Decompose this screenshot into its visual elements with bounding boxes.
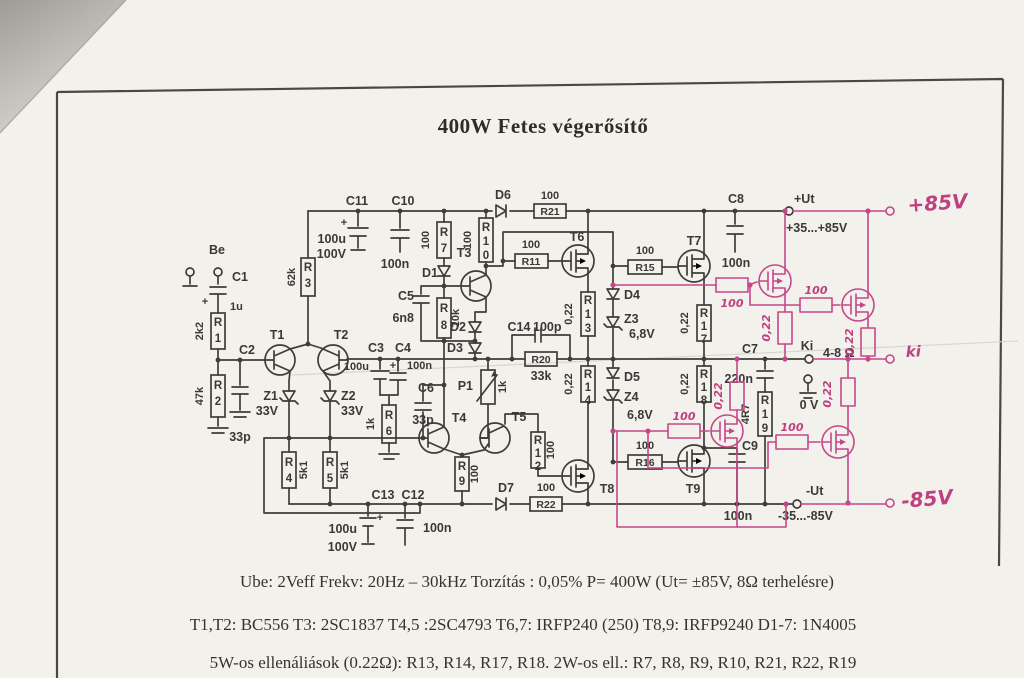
- pink-source-resistor-2: [861, 328, 875, 356]
- diode-d5: [607, 368, 619, 378]
- label-r15: R15: [635, 262, 654, 274]
- pink-labels: +85V ki -85V 100 100 100 100 0,22 0,22 0…: [673, 189, 970, 513]
- diode-d6: [496, 205, 506, 217]
- label-c11v1: 100u: [318, 232, 347, 246]
- label-t7: T7: [687, 234, 702, 248]
- gnd-terminal: [804, 375, 812, 383]
- pink-mosfet-1: [759, 265, 791, 297]
- label-c14: C14: [508, 320, 531, 334]
- annotation-gate-r4: 100: [781, 421, 804, 434]
- label-z2: Z2: [341, 389, 356, 403]
- label-vplus-range: +35...+85V: [786, 221, 848, 235]
- label-r2: R2: [214, 380, 223, 408]
- label-z3: Z3: [624, 312, 639, 326]
- label-c8v: 100n: [722, 256, 751, 270]
- mosfet-t7: [678, 250, 710, 282]
- label-c11: C11: [346, 194, 368, 208]
- component-labels: Be C1 1u + R1 2k2 R2 47k C2 33p T1 T2 Z1…: [194, 188, 855, 554]
- label-r2v: 47k: [194, 386, 206, 405]
- label-r1v: 2k2: [194, 322, 206, 340]
- label-c1: C1: [232, 270, 248, 284]
- transistor-t5: [480, 423, 510, 453]
- input-gnd-terminal: [186, 268, 194, 276]
- transistor-t3: [461, 271, 491, 301]
- transistor-t4: [419, 423, 449, 453]
- label-r9v: 100: [469, 465, 481, 483]
- spec-lines: Ube: 2Veff Frekv: 20Hz – 30kHz Torzítás …: [190, 572, 857, 672]
- label-r3: R3: [304, 262, 313, 290]
- label-r5: R5: [326, 457, 335, 485]
- label-d2: D2: [450, 320, 466, 334]
- mosfet-t8: [562, 460, 594, 492]
- label-z4v: 6,8V: [627, 408, 653, 422]
- mosfet-t9: [678, 445, 710, 477]
- mosfet-t6: [562, 245, 594, 277]
- label-c3: C3: [368, 341, 384, 355]
- diode-d2: [469, 322, 481, 332]
- label-c4v: 100n: [407, 360, 432, 372]
- annotation-gate-r2: 100: [805, 284, 828, 297]
- label-r19v: 4R7: [740, 404, 752, 424]
- label-r3v: 62k: [286, 267, 298, 286]
- label-r21v: 100: [541, 190, 559, 202]
- label-r22: R22: [536, 499, 555, 511]
- label-r6v: 1k: [365, 417, 377, 430]
- label-c10v: 100n: [381, 257, 410, 271]
- pink-output-terminal: [886, 355, 894, 363]
- label-c7: C7: [742, 342, 758, 356]
- label-c8: C8: [728, 192, 744, 206]
- annotation-source-r2: 0,22: [843, 328, 856, 355]
- label-c5v: 6n8: [392, 311, 414, 325]
- pink-gate-resistor-2: [800, 298, 832, 312]
- label-c14v: 100p: [533, 320, 562, 334]
- label-z1v: 33V: [256, 404, 279, 418]
- label-c10: C10: [392, 194, 415, 208]
- label-c6v: 33p: [412, 413, 434, 427]
- plus-sign: +: [377, 512, 383, 524]
- diode-d3: [469, 343, 481, 353]
- label-r13v: 0,22: [563, 303, 575, 324]
- pink-source-resistor-4: [841, 378, 855, 406]
- label-t1: T1: [270, 328, 285, 342]
- label-be: Be: [209, 243, 225, 257]
- label-r7: R7: [440, 227, 449, 255]
- diode-d7: [496, 498, 506, 510]
- annotation-gate-r1: 100: [721, 297, 744, 310]
- label-c3v: 100u: [344, 361, 369, 373]
- page-title: 400W Fetes végerősítő: [438, 114, 649, 138]
- label-c4: C4: [395, 341, 411, 355]
- label-c13v2: 100V: [328, 540, 358, 554]
- label-r16v: 100: [636, 440, 654, 452]
- label-p1v: 1k: [497, 380, 509, 393]
- plus-sign: +: [341, 217, 347, 229]
- spec-line-2: T1,T2: BC556 T3: 2SC1837 T4,5 :2SC4793 T…: [190, 615, 857, 634]
- label-r4v: 5k1: [298, 461, 310, 479]
- label-r13: R13: [584, 295, 593, 335]
- label-r12v: 100: [545, 441, 557, 459]
- label-r18v: 0,22: [679, 373, 691, 394]
- label-c2: C2: [239, 343, 255, 357]
- label-t6: T6: [570, 230, 585, 244]
- label-t2: T2: [334, 328, 349, 342]
- pink-vminus-terminal: [886, 499, 894, 507]
- label-r21: R21: [540, 206, 559, 218]
- label-d4: D4: [624, 288, 640, 302]
- label-r20: R20: [531, 354, 550, 366]
- label-r14v: 0,22: [563, 373, 575, 394]
- annotation-gate-r3: 100: [673, 410, 696, 423]
- pink-vplus-terminal: [886, 207, 894, 215]
- label-r10: R10: [482, 222, 491, 262]
- label-r6: R6: [385, 410, 394, 438]
- label-c9: C9: [742, 439, 758, 453]
- pink-gate-resistor-4: [776, 435, 808, 449]
- label-c9v: 100n: [724, 509, 753, 523]
- label-c13: C13: [372, 488, 395, 502]
- plus-sign: +: [202, 296, 208, 308]
- label-vminus: -Ut: [806, 484, 824, 498]
- pink-gate-resistor-1: [716, 278, 748, 292]
- label-r11: R11: [522, 256, 541, 268]
- label-c2v: 33p: [229, 430, 251, 444]
- schematic-canvas: 400W Fetes végerősítő: [0, 0, 1024, 678]
- label-c11v2: 100V: [317, 247, 347, 261]
- label-z3v: 6,8V: [629, 327, 655, 341]
- label-d3: D3: [447, 341, 463, 355]
- annotation-source-r3: 0,22: [712, 382, 725, 409]
- label-d1: D1: [422, 266, 438, 280]
- pink-mosfet-4: [822, 426, 854, 458]
- input-terminal: [214, 268, 222, 276]
- annotation-source-r1: 0,22: [760, 314, 773, 341]
- annotation-output: ki: [905, 342, 922, 361]
- label-r5v: 5k1: [339, 461, 351, 479]
- label-ki: Ki: [801, 339, 814, 353]
- pink-source-resistor-1: [778, 312, 792, 344]
- label-t9: T9: [686, 482, 701, 496]
- annotation-source-r4: 0,22: [821, 380, 834, 407]
- spec-line-1: Ube: 2Veff Frekv: 20Hz – 30kHz Torzítás …: [240, 572, 834, 591]
- diode-d1: [438, 266, 450, 276]
- output-terminal: [805, 355, 813, 363]
- label-r8: R8: [440, 303, 449, 332]
- terminals: [186, 207, 813, 508]
- label-vplus: +Ut: [794, 192, 815, 206]
- scanned-schematic-page: 400W Fetes végerősítő: [0, 0, 1024, 678]
- label-r19: R19: [761, 395, 770, 435]
- label-t5: T5: [512, 410, 527, 424]
- label-c7v: 220n: [725, 372, 754, 386]
- label-z2v: 33V: [341, 404, 364, 418]
- pink-wiring: [613, 207, 894, 527]
- label-r22v: 100: [537, 482, 555, 494]
- label-z1: Z1: [263, 389, 278, 403]
- label-d7: D7: [498, 481, 514, 495]
- label-t3: T3: [457, 246, 472, 260]
- label-c5: C5: [398, 289, 414, 303]
- circuit-printed: Be C1 1u + R1 2k2 R2 47k C2 33p T1 T2 Z1…: [183, 188, 855, 554]
- label-c12v: 100n: [423, 521, 452, 535]
- label-r15v: 100: [636, 245, 654, 257]
- label-c1v: 1u: [230, 301, 243, 313]
- label-c12: C12: [402, 488, 425, 502]
- label-r20v: 33k: [531, 369, 552, 383]
- annotation-vplus: +85V: [907, 189, 970, 217]
- annotation-vminus: -85V: [900, 484, 955, 513]
- pink-gate-resistor-3: [668, 424, 700, 438]
- label-r17v: 0,22: [679, 312, 691, 333]
- label-r9: R9: [458, 461, 467, 488]
- label-r11v: 100: [522, 239, 540, 251]
- plus-sign: +: [390, 360, 396, 372]
- spec-line-3: 5W-os ellenáliások (0.22Ω): R13, R14, R1…: [210, 653, 857, 672]
- label-t8: T8: [600, 482, 615, 496]
- label-gnd: 0 V: [800, 398, 819, 412]
- diode-d4: [607, 289, 619, 299]
- label-z4: Z4: [624, 390, 639, 404]
- label-p1: P1: [458, 379, 473, 393]
- label-d6: D6: [495, 188, 511, 202]
- label-r1: R1: [214, 317, 223, 345]
- label-t4: T4: [452, 411, 467, 425]
- label-c13v1: 100u: [329, 522, 358, 536]
- label-r4: R4: [285, 457, 294, 485]
- label-r7v: 100: [420, 231, 432, 249]
- pink-mosfet-2: [842, 289, 874, 321]
- label-c6: C6: [418, 381, 434, 395]
- label-d5: D5: [624, 370, 640, 384]
- pink-mosfet-3: [711, 415, 743, 447]
- transistor-t1: [265, 345, 295, 375]
- vminus-terminal: [793, 500, 801, 508]
